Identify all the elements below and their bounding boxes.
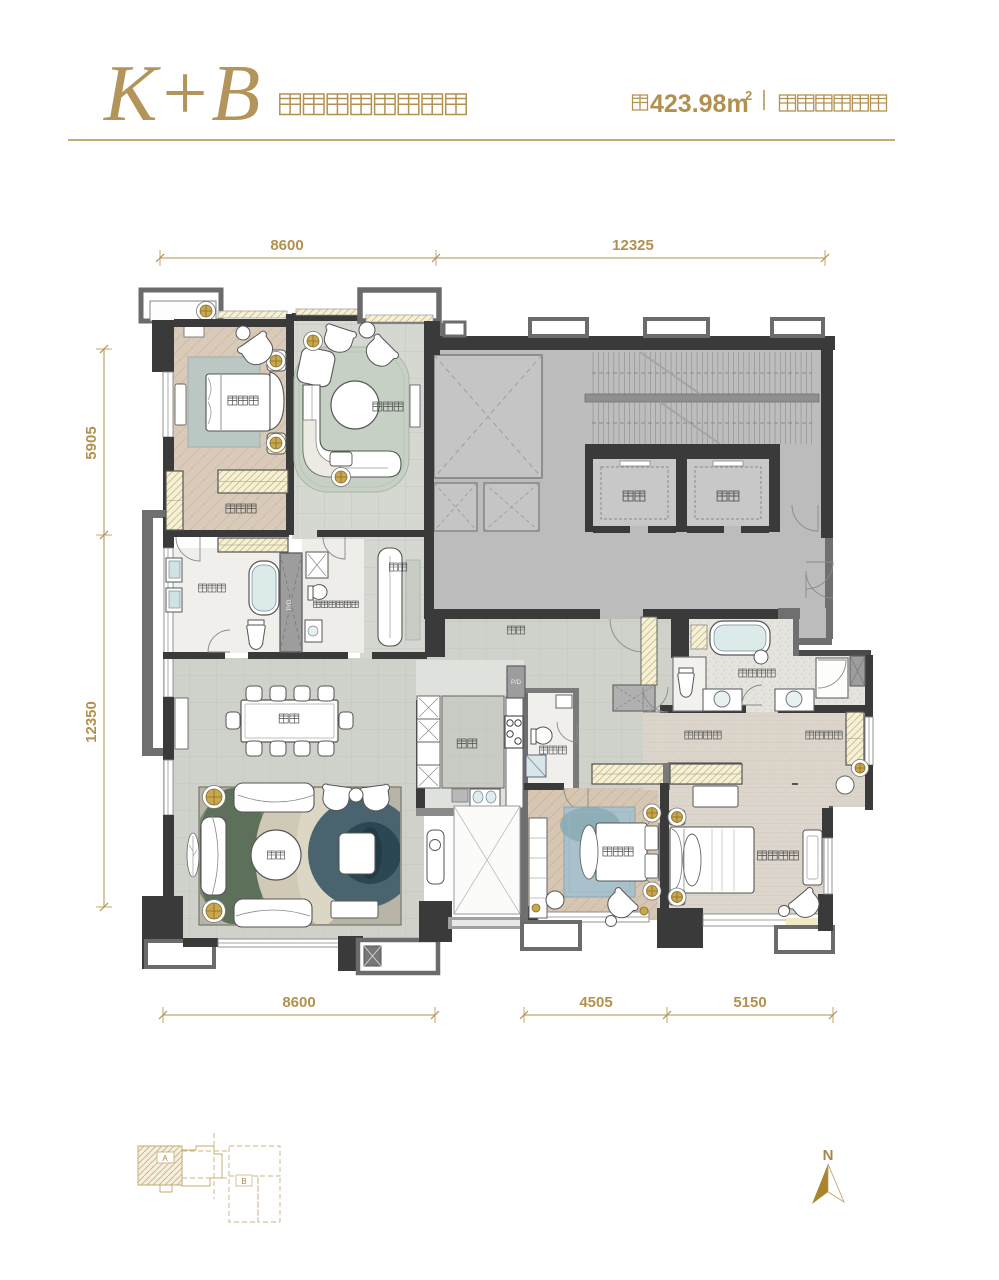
- svg-text:A: A: [162, 1154, 168, 1163]
- svg-text:8600: 8600: [270, 237, 303, 254]
- svg-text:12325: 12325: [612, 237, 654, 254]
- svg-text:P/D: P/D: [511, 680, 522, 686]
- svg-text:B: B: [241, 1177, 246, 1186]
- svg-text:2: 2: [745, 88, 752, 103]
- svg-text:K+B: K+B: [103, 50, 260, 138]
- svg-text:4505: 4505: [579, 994, 612, 1011]
- svg-text:5905: 5905: [83, 426, 100, 459]
- svg-text:423.98m: 423.98m: [650, 90, 749, 118]
- svg-text:N: N: [823, 1147, 834, 1164]
- svg-text:5150: 5150: [733, 994, 766, 1011]
- svg-text:12350: 12350: [83, 701, 100, 743]
- svg-text:8600: 8600: [282, 994, 315, 1011]
- svg-text:P/D: P/D: [286, 599, 293, 610]
